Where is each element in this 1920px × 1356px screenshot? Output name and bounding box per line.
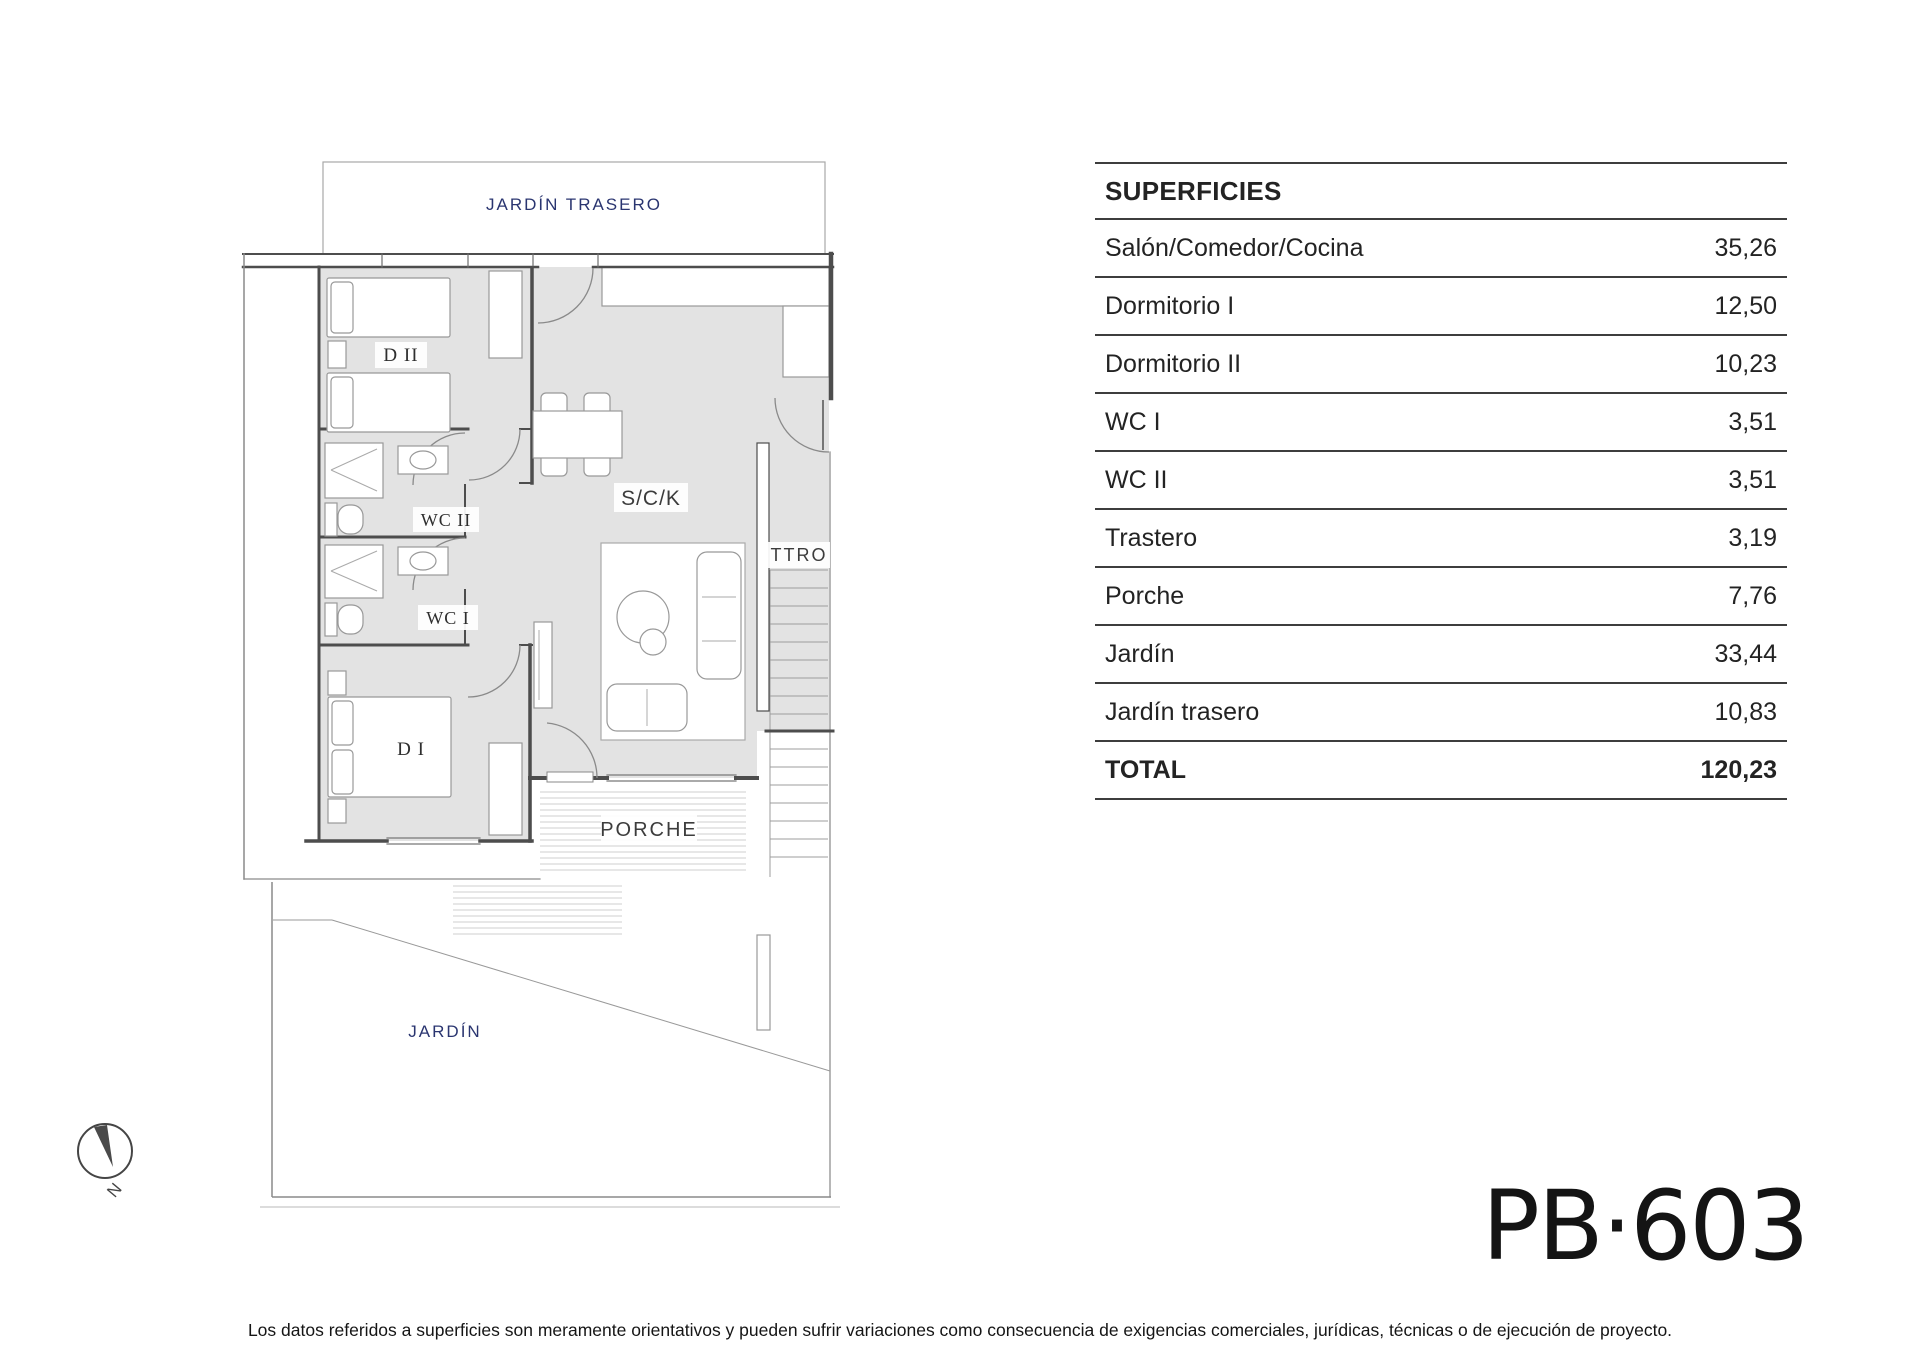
disclaimer-text: Los datos referidos a superficies son me… <box>0 1320 1920 1341</box>
floor-plan-sheet: JARDÍN TRASERO <box>0 0 1920 1356</box>
row-value: 35,26 <box>1714 234 1777 263</box>
total-label: TOTAL <box>1105 756 1186 785</box>
compass: N <box>78 1124 132 1201</box>
room-label-jardin: JARDÍN <box>408 1022 481 1041</box>
row-value: 3,51 <box>1728 408 1777 437</box>
row-value: 3,19 <box>1728 524 1777 553</box>
row-value: 7,76 <box>1728 582 1777 611</box>
table-row: Dormitorio II 10,23 <box>1095 336 1787 394</box>
table-row: Jardín trasero 10,83 <box>1095 684 1787 742</box>
room-label-porche: PORCHE <box>600 819 698 841</box>
surfaces-table: SUPERFICIES Salón/Comedor/Cocina 35,26 D… <box>1095 162 1787 800</box>
row-label: Dormitorio I <box>1105 292 1234 321</box>
row-label: Jardín trasero <box>1105 698 1259 727</box>
room-label-sck: S/C/K <box>621 487 681 510</box>
floor-plan-drawing: JARDÍN TRASERO <box>0 0 960 1280</box>
table-row: Trastero 3,19 <box>1095 510 1787 568</box>
row-value: 10,83 <box>1714 698 1777 727</box>
row-label: Dormitorio II <box>1105 350 1241 379</box>
row-label: Salón/Comedor/Cocina <box>1105 234 1363 263</box>
table-row: WC I 3,51 <box>1095 394 1787 452</box>
row-label: Trastero <box>1105 524 1197 553</box>
plan-code: PB·603 <box>1482 1178 1808 1274</box>
rear-garden-area: JARDÍN TRASERO <box>323 162 825 254</box>
row-label: WC I <box>1105 408 1161 437</box>
surfaces-table-title: SUPERFICIES <box>1095 164 1787 220</box>
table-row: Porche 7,76 <box>1095 568 1787 626</box>
row-label: WC II <box>1105 466 1168 495</box>
table-row-total: TOTAL 120,23 <box>1095 742 1787 800</box>
row-label: Jardín <box>1105 640 1174 669</box>
room-label-wc2: WC II <box>421 510 471 530</box>
rear-garden-label: JARDÍN TRASERO <box>486 195 662 214</box>
row-value: 12,50 <box>1714 292 1777 321</box>
room-label-wc1: WC I <box>426 608 470 628</box>
row-value: 33,44 <box>1714 640 1777 669</box>
north-label: N <box>103 1179 125 1201</box>
table-row: Salón/Comedor/Cocina 35,26 <box>1095 220 1787 278</box>
garden-boundary <box>260 882 840 1207</box>
row-value: 3,51 <box>1728 466 1777 495</box>
total-value: 120,23 <box>1701 756 1777 785</box>
room-label-d1: D I <box>397 739 425 760</box>
table-row: Dormitorio I 12,50 <box>1095 278 1787 336</box>
room-label-d2: D II <box>383 345 418 366</box>
table-row: WC II 3,51 <box>1095 452 1787 510</box>
room-label-ttro: TTRO <box>771 545 828 565</box>
row-label: Porche <box>1105 582 1184 611</box>
row-value: 10,23 <box>1714 350 1777 379</box>
table-row: Jardín 33,44 <box>1095 626 1787 684</box>
